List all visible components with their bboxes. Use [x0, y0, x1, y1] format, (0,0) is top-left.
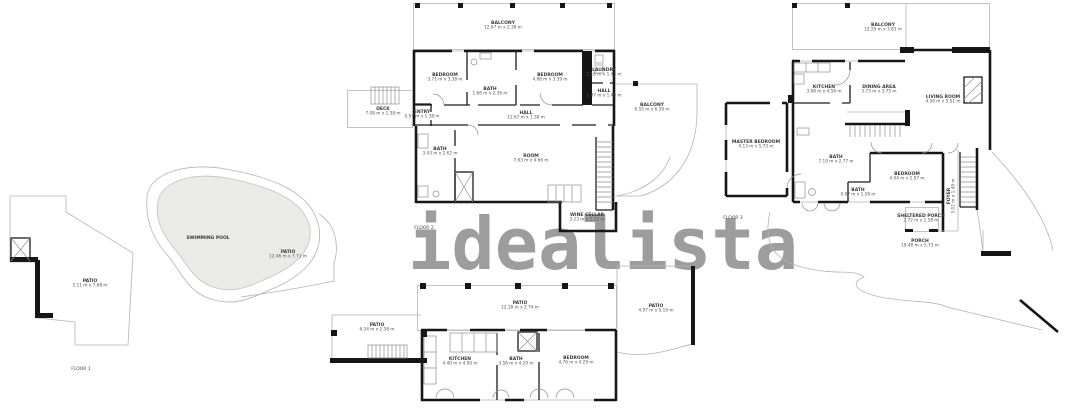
floor-name: FLOOR 3: [723, 216, 742, 221]
room-dims: 1.47 m x 1.48 m: [586, 93, 621, 98]
floor-3-plan: [726, 3, 1058, 332]
room-dims: 3.43 m x 2.62 m: [422, 151, 457, 156]
floor-name: FLOOR 2: [414, 226, 433, 231]
room-dims: 4.56 m x 5.51 m: [925, 99, 960, 104]
room-dims: 7.63 m x 4.66 m: [513, 158, 548, 163]
room-dims: 4.40 m x 4.00 m: [442, 361, 477, 366]
floor-0-plan: [330, 266, 695, 401]
room-dims: 12.67 m x 2.38 m: [484, 25, 522, 30]
room-dims: 3.71 m x 3.38 m: [427, 77, 462, 82]
room-dims: 3.23 m x 1.72 m: [569, 217, 604, 222]
room-dims: 11.67 m x 1.38 m: [507, 115, 545, 120]
room-name: SWIMMING POOL: [186, 236, 229, 241]
room-dims: 5.11 m x 7.68 m: [72, 283, 107, 288]
room-dims: 4.97 m x 5.19 m: [638, 308, 673, 313]
room-dims: 3.01 m x 1.49 m: [951, 178, 956, 213]
room-dims: 2.72 m x 1.58 m: [897, 218, 945, 223]
room-dims: 3.68 m x 4.56 m: [806, 89, 841, 94]
room-dims: 3.73 m x 3.75 m: [861, 89, 896, 94]
floor-name: FLOOR 1: [71, 367, 90, 372]
room-dims: 19.48 m x 5.73 m: [901, 243, 939, 248]
room-dims: 4.76 m x 4.29 m: [558, 360, 593, 365]
floorplan-canvas: [0, 0, 1080, 416]
room-dims: 6.34 m x 2.58 m: [359, 327, 394, 332]
room-dims: 4.04 m x 2.97 m: [889, 176, 924, 181]
room-dims: 12.29 m x 3.83 m: [864, 27, 902, 32]
room-dims: 6.55 m x 6.39 m: [634, 107, 669, 112]
room-dims: 1.66 m x 2.36 m: [472, 91, 507, 96]
room-dims: 3.56 m x 4.20 m: [498, 361, 533, 366]
room-dims: 12.46 m x 7.71 m: [269, 254, 307, 259]
floorplan-page: idealista: [0, 0, 1080, 416]
room-dims: 4.13 m x 5.73 m: [732, 144, 780, 149]
room-dims: 2.16 m x 1.43 m: [586, 72, 621, 77]
room-dims: 0.97 m x 1.58 m: [840, 192, 875, 197]
room-dims: 12.18 m x 2.74 m: [501, 305, 539, 310]
room-dims: 7.19 m x 2.77 m: [818, 159, 853, 164]
room-dims: 0.97 m x 1.38 m: [404, 114, 439, 119]
room-dims: 4.88 m x 3.39 m: [532, 77, 567, 82]
room-dims: 7.08 m x 1.38 m: [365, 111, 400, 116]
